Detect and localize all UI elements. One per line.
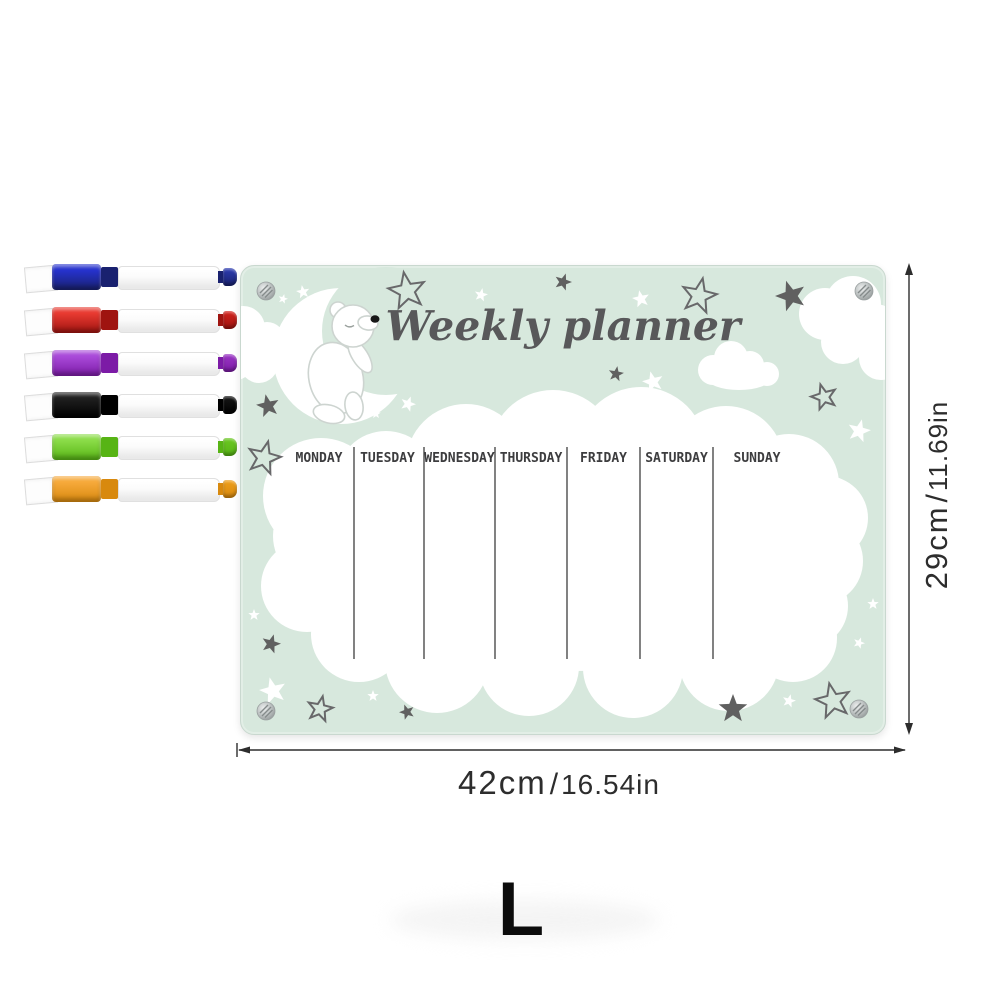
star-icon [367, 690, 378, 701]
marker-red [25, 307, 228, 333]
marker-cap [52, 434, 101, 460]
marker-cap [52, 350, 101, 376]
star-icon [867, 598, 878, 609]
marker-end-plug [223, 396, 237, 414]
marker-cap [52, 307, 101, 333]
day-header-wednesday: WEDNESDAY [424, 451, 495, 467]
screw-icon [855, 282, 873, 300]
day-header-saturday: SATURDAY [640, 451, 713, 467]
marker-purple [25, 350, 228, 376]
marker-collar [101, 437, 118, 457]
marker-collar [101, 395, 118, 415]
height-metric-value: 29cm [919, 505, 954, 589]
marker-cap [52, 476, 101, 502]
marker-collar [101, 310, 118, 330]
star-icon [248, 609, 259, 620]
star-icon [781, 693, 797, 709]
star-icon [399, 394, 418, 413]
width-metric-value: 42cm [458, 764, 547, 801]
marker-collar [101, 479, 118, 499]
height-separator: / [921, 491, 954, 505]
star-icon [852, 635, 866, 649]
size-option-label: L [461, 872, 581, 948]
height-imperial-value: 11.69in [923, 401, 953, 491]
marker-body [118, 352, 220, 376]
height-dimension-arrow [901, 262, 917, 736]
screw-icon [850, 700, 868, 718]
marker-end-plug [223, 311, 237, 329]
day-header-monday: MONDAY [287, 451, 351, 467]
marker-orange [25, 476, 228, 502]
star-icon [306, 694, 335, 722]
marker-end-plug [223, 268, 237, 286]
marker-collar [101, 267, 118, 287]
marker-body [118, 309, 220, 333]
star-icon [473, 287, 489, 302]
height-dimension-label: 29cm/11.69in [919, 365, 963, 625]
marker-collar [101, 353, 118, 373]
day-header-tuesday: TUESDAY [351, 451, 424, 467]
width-imperial-value: 16.54in [561, 769, 660, 800]
star-icon [813, 680, 853, 719]
marker-body [118, 266, 220, 290]
day-header-thursday: THURSDAY [495, 451, 567, 467]
marker-body [118, 436, 220, 460]
marker-cap [52, 264, 101, 290]
star-icon [607, 365, 624, 382]
marker-body [118, 394, 220, 418]
width-separator: / [547, 768, 561, 801]
marker-black [25, 392, 228, 418]
marker-cap [52, 392, 101, 418]
marker-end-plug [223, 438, 237, 456]
marker-blue [25, 264, 228, 290]
marker-end-plug [223, 354, 237, 372]
screw-icon [257, 282, 275, 300]
marker-green [25, 434, 228, 460]
star-icon [846, 417, 873, 444]
marker-end-plug [223, 480, 237, 498]
star-icon [257, 674, 289, 705]
day-header-sunday: SUNDAY [713, 451, 801, 467]
product-image: Weekly planner MONDAY TUESDAY WEDNESDAY … [0, 0, 1000, 1000]
width-dimension-arrow [234, 742, 908, 760]
marker-body [118, 478, 220, 502]
screw-icon [257, 702, 275, 720]
width-dimension-label: 42cm/16.54in [399, 764, 719, 802]
star-icon [809, 381, 839, 410]
weekly-planner-board: Weekly planner MONDAY TUESDAY WEDNESDAY … [240, 265, 886, 735]
star-icon [254, 392, 281, 418]
day-header-friday: FRIDAY [567, 451, 640, 467]
board-title: Weekly planner [241, 302, 885, 350]
big-cloud-writing-area [261, 387, 868, 718]
star-icon [553, 271, 574, 292]
star-icon [260, 632, 283, 655]
